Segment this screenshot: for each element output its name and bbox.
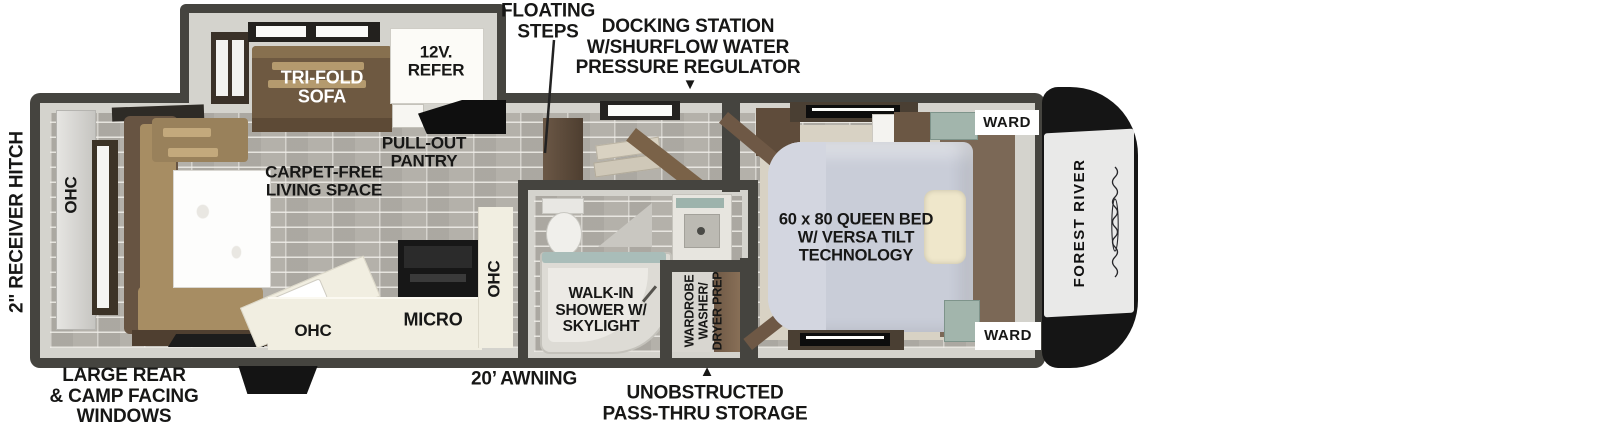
bath-vanity-counter [676, 198, 724, 208]
brand-signature-icon [1106, 165, 1124, 285]
receiver-hitch-label: 2" RECEIVER HITCH [8, 131, 29, 313]
partition-entry-bedroom [722, 93, 740, 192]
toilet-bowl [546, 212, 582, 256]
bedroom-cab-wood-top [894, 112, 930, 146]
slideout-skylight-pane-2 [316, 26, 368, 37]
bath-sink-drain [697, 227, 705, 235]
pantry-tall-cabinet [543, 118, 583, 184]
rear-window-glass [97, 146, 109, 308]
tri-fold-sofa-front [252, 118, 392, 132]
queen-bed-label: 60 x 80 QUEEN BED W/ VERSA TILT TECHNOLO… [779, 211, 933, 264]
tri-fold-sofa-label: TRI-FOLD SOFA [281, 69, 363, 108]
cooktop-knobs [410, 274, 466, 282]
entry-step [233, 366, 323, 394]
shower-glass [542, 252, 666, 263]
slideout-skylight-pane [256, 26, 306, 37]
shower-label: WALK-IN SHOWER W/ SKYLIGHT [555, 286, 646, 336]
pull-out-pantry-label: PULL-OUT PANTRY [382, 135, 466, 172]
bedroom-vent-bottom-inner [800, 333, 890, 346]
rv-floorplan-page: FOREST RIVER [0, 0, 1600, 424]
dinette-headrest-2 [168, 148, 218, 157]
micro-label: MICRO [404, 310, 463, 329]
bedroom-cab-teal-top [930, 112, 978, 140]
brand-label: FOREST RIVER [1072, 159, 1089, 288]
ohc-wall-label: OHC [486, 260, 505, 297]
ohc-rear-label: OHC [63, 176, 82, 213]
dinette-headrest [163, 128, 211, 137]
awning-label: 20’ AWNING [471, 370, 577, 391]
docking-station-label: DOCKING STATION W/SHURFLOW WATER PRESSUR… [576, 17, 801, 79]
ward-bottom-label: WARD [984, 328, 1032, 344]
ward-top-label: WARD [983, 115, 1031, 131]
docking-station-arrow-icon: ▼ [683, 77, 698, 93]
hall-skylight-pane [608, 105, 672, 116]
ohc-counter-label: OHC [294, 322, 331, 340]
partition-wardrobe-bedroom [740, 258, 758, 368]
wardrobe-wall-left [660, 260, 672, 368]
slideout-window-glass [216, 40, 228, 96]
rear-windows-label: LARGE REAR & CAMP FACING WINDOWS [49, 366, 198, 424]
dinette-table [173, 170, 271, 288]
bedroom-vent-bottom-light [806, 336, 884, 339]
rear-ohc-cabinet [56, 110, 96, 330]
tri-fold-sofa-back [252, 46, 392, 58]
bedroom-vent-top-light [812, 108, 894, 111]
refrigerator-label: 12V. REFER [408, 44, 465, 81]
wardrobe-label: WARDROBE WASHER/ DRYER PREP [683, 272, 724, 351]
pass-thru-arrow-icon: ▲ [700, 364, 715, 380]
pass-thru-label: UNOBSTRUCTED PASS-THRU STORAGE [603, 383, 808, 424]
slideout-window-glass-2 [232, 40, 244, 96]
cooktop-grate [404, 246, 472, 268]
carpet-free-label: CARPET-FREE LIVING SPACE [265, 164, 383, 201]
